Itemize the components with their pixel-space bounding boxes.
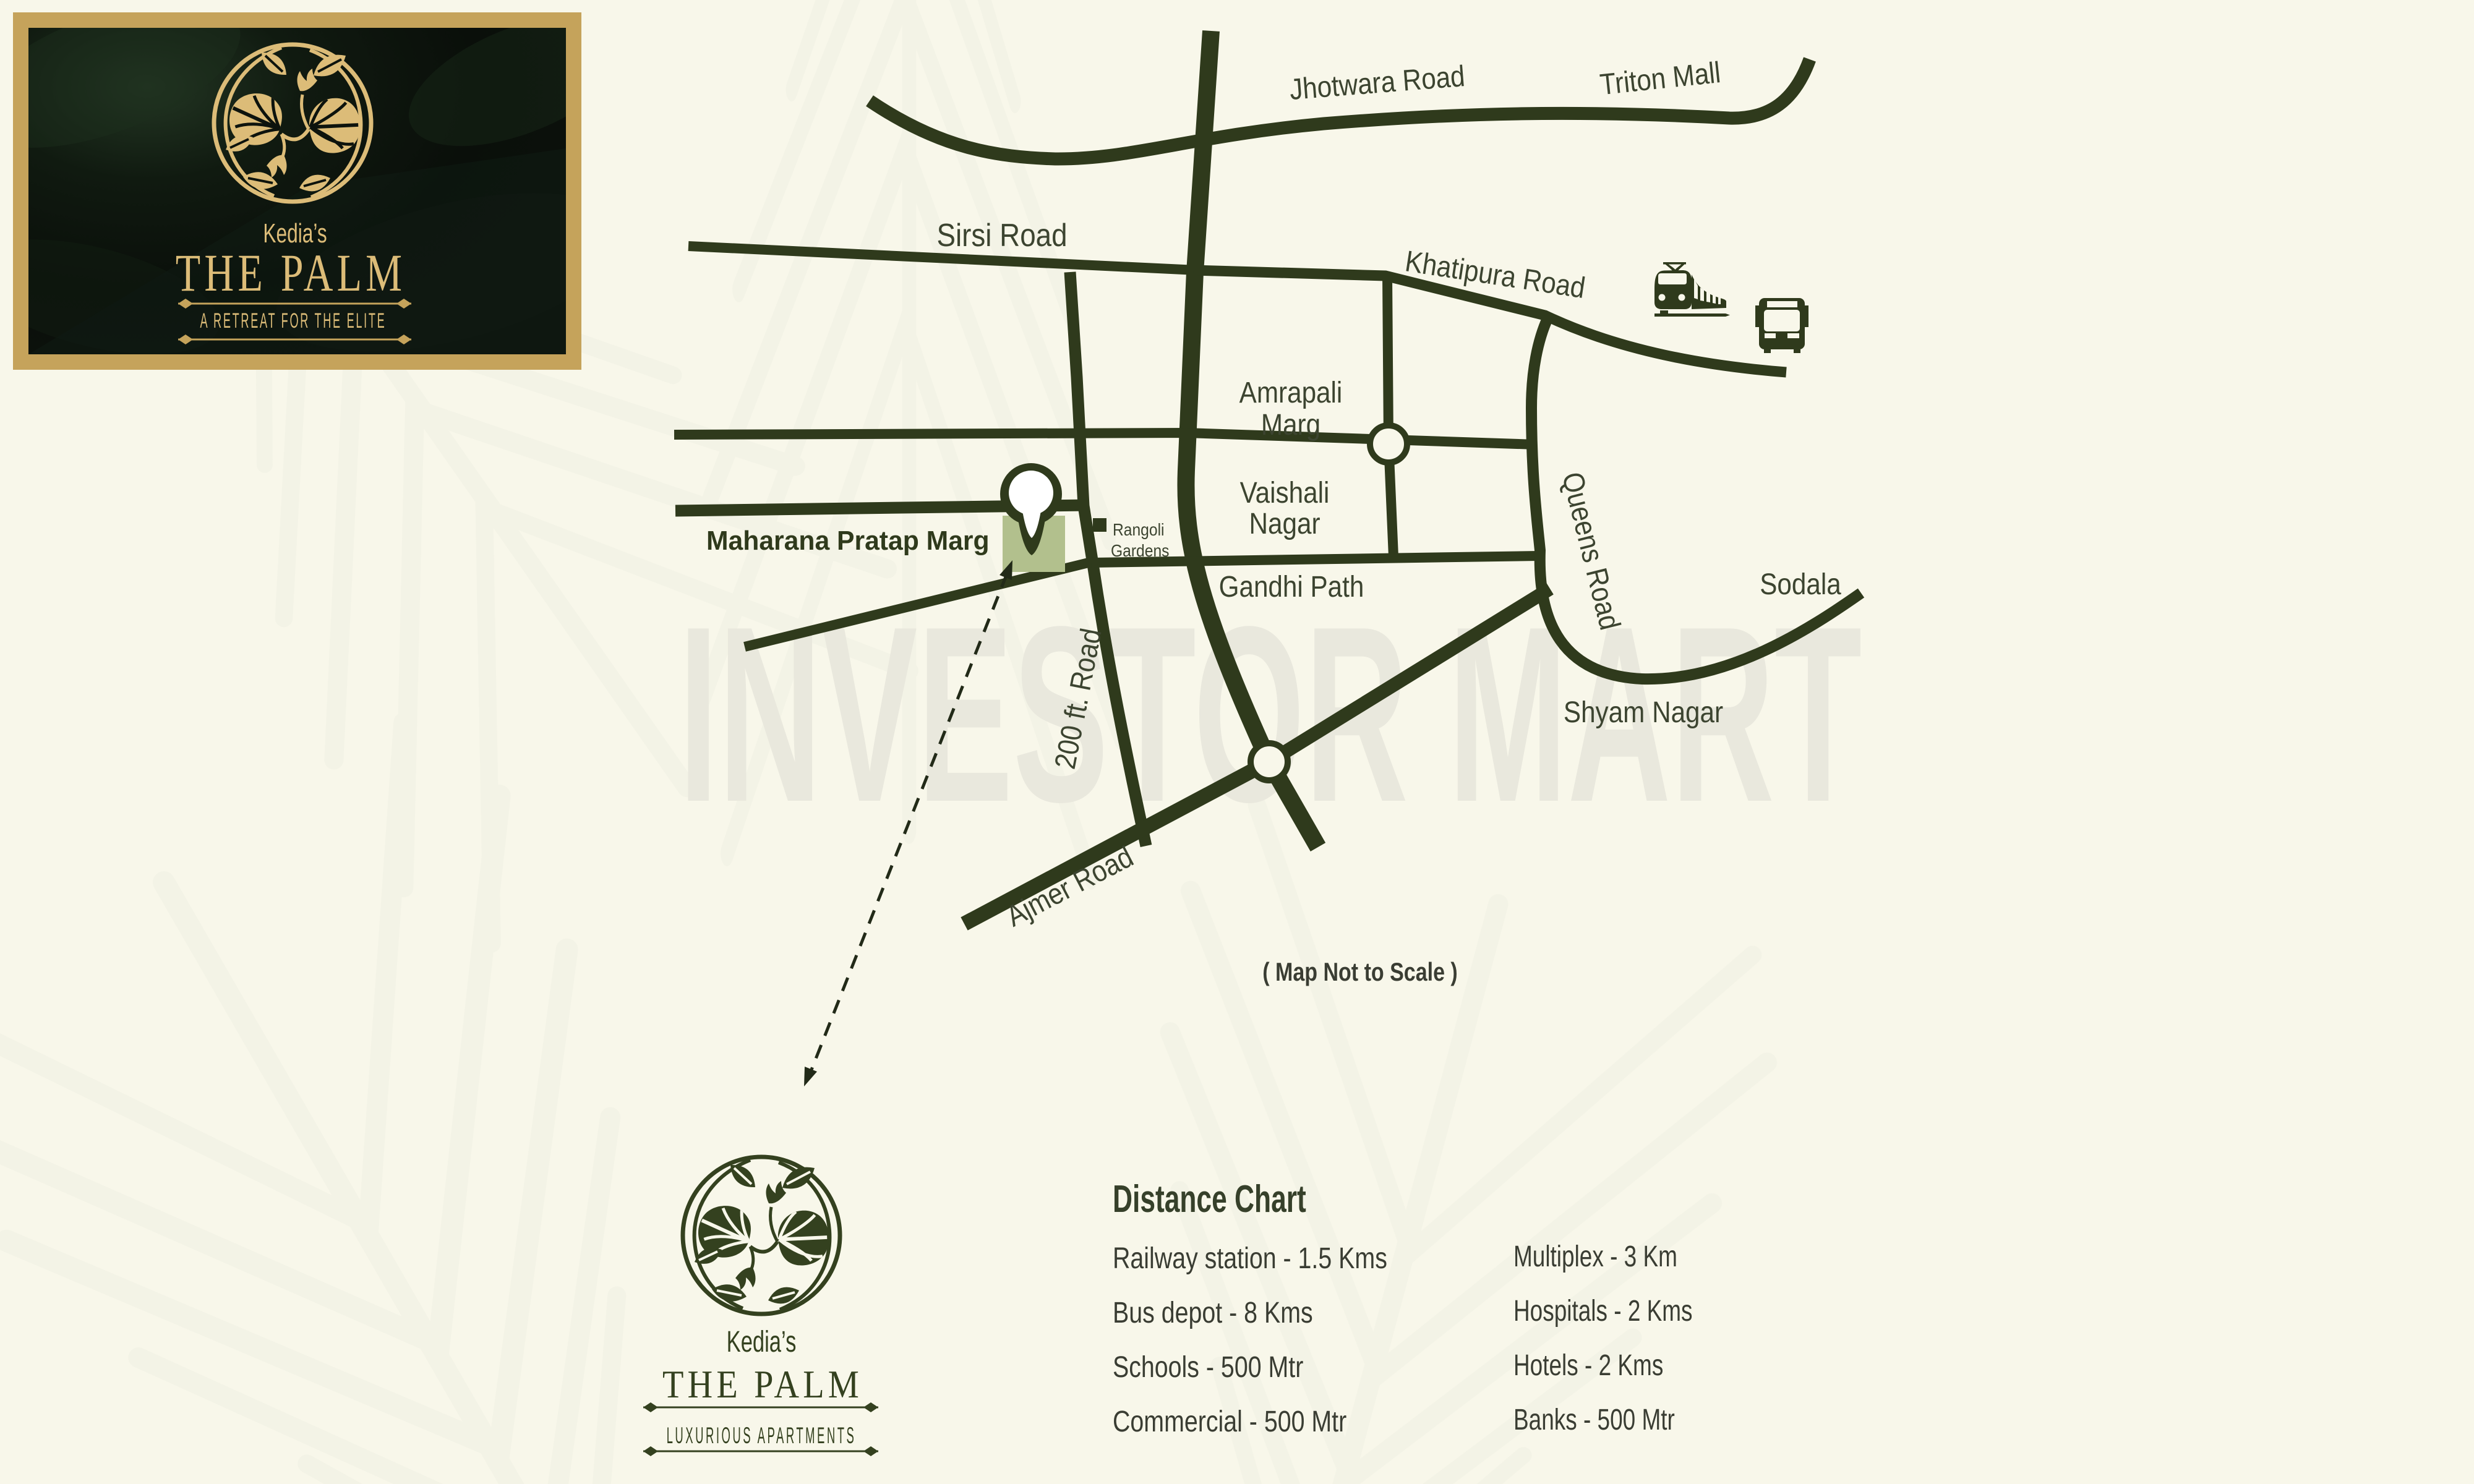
- svg-text:Hospitals - 2 Kms: Hospitals - 2 Kms: [1513, 1294, 1693, 1328]
- svg-text:Gandhi Path: Gandhi Path: [1219, 569, 1364, 603]
- svg-text:Hotels - 2 Kms: Hotels - 2 Kms: [1513, 1349, 1663, 1382]
- svg-text:Commercial - 500 Mtr: Commercial - 500 Mtr: [1113, 1405, 1346, 1438]
- svg-text:THE PALM: THE PALM: [176, 244, 406, 302]
- svg-text:Vaishali: Vaishali: [1240, 475, 1330, 509]
- svg-text:LUXURIOUS APARTMENTS: LUXURIOUS APARTMENTS: [667, 1423, 857, 1448]
- svg-text:Kedia’s: Kedia’s: [727, 1324, 797, 1358]
- svg-text:Distance Chart: Distance Chart: [1113, 1178, 1306, 1221]
- svg-text:Gardens: Gardens: [1111, 541, 1169, 561]
- svg-text:Rangoli: Rangoli: [1113, 520, 1165, 540]
- svg-text:Railway station - 1.5 Kms: Railway station - 1.5 Kms: [1113, 1242, 1387, 1275]
- svg-text:Sodala: Sodala: [1760, 567, 1841, 600]
- svg-text:Sirsi Road: Sirsi Road: [936, 218, 1067, 253]
- svg-text:Bus depot - 8 Kms: Bus depot - 8 Kms: [1113, 1296, 1313, 1329]
- svg-text:Maharana Pratap Marg: Maharana Pratap Marg: [706, 526, 990, 556]
- svg-text:Schools - 500 Mtr: Schools - 500 Mtr: [1113, 1350, 1303, 1384]
- svg-text:Nagar: Nagar: [1249, 506, 1320, 540]
- svg-text:Amrapali: Amrapali: [1239, 375, 1343, 409]
- svg-text:Shyam Nagar: Shyam Nagar: [1564, 695, 1723, 728]
- svg-text:THE PALM: THE PALM: [662, 1363, 863, 1407]
- svg-text:( Map Not to Scale ): ( Map Not to Scale ): [1262, 958, 1458, 987]
- svg-text:Marg: Marg: [1261, 407, 1320, 441]
- svg-text:Banks - 500 Mtr: Banks - 500 Mtr: [1513, 1403, 1675, 1436]
- svg-text:Multiplex - 3 Km: Multiplex - 3 Km: [1513, 1240, 1677, 1273]
- svg-text:A RETREAT FOR THE ELITE: A RETREAT FOR THE ELITE: [200, 309, 387, 333]
